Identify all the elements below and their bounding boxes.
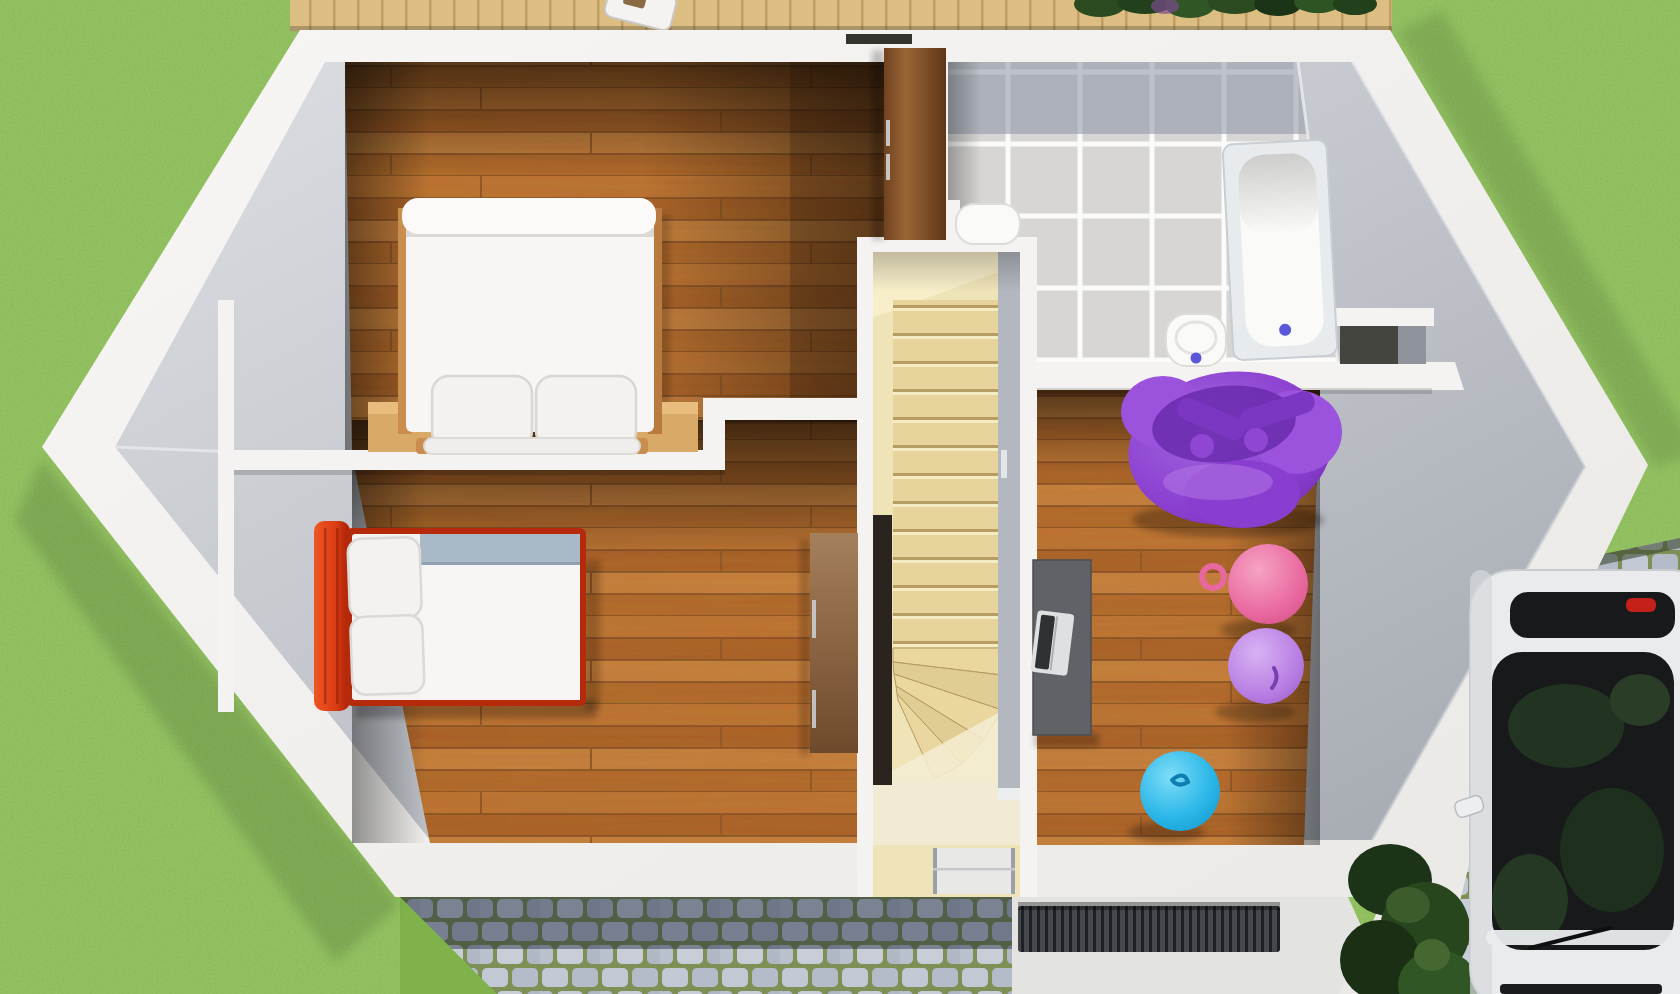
front-door-glass [933, 848, 1015, 894]
blue-ball [1140, 751, 1220, 831]
headboard-grain [324, 528, 327, 704]
cobble-path-shadow [400, 897, 1012, 949]
wardrobe1-shadow [872, 50, 884, 240]
bed2-pillows [347, 537, 424, 695]
niche-inner-face [1398, 326, 1426, 364]
wardrobe-single-room [810, 533, 858, 753]
toilet [1166, 314, 1226, 366]
glass-rail-panel [998, 252, 1022, 792]
floorplan-render [0, 0, 1680, 994]
bed2-side-shadow [584, 560, 600, 710]
hall-left-wall [857, 237, 873, 897]
car [1453, 570, 1680, 994]
beanbag-knob [1244, 428, 1268, 452]
bed2-band-edge [420, 562, 580, 565]
beanbag-knob [1190, 434, 1214, 458]
bed2-pillow-top [347, 537, 422, 619]
headboard-grain [336, 528, 339, 704]
top-wall-slot [846, 34, 912, 44]
car-grille [1500, 984, 1662, 994]
stair-hall [872, 250, 1024, 897]
floorplan-svg [0, 0, 1680, 994]
bed2-duvet-band [420, 534, 580, 564]
wardrobe2-shadow [800, 540, 810, 755]
wardrobe2-handle [812, 690, 816, 728]
niche-top-wall [1334, 308, 1434, 326]
bath-top-shadow [947, 62, 1342, 134]
wardrobe1-handle [886, 120, 890, 146]
toilet-flush-button [1191, 353, 1202, 364]
front-door [933, 848, 1015, 894]
wardrobe-double-room [884, 48, 946, 240]
laptop [1030, 610, 1074, 676]
door-frame-right [1011, 848, 1015, 894]
stair-treads [893, 300, 1010, 648]
bathtub-inner-shadow [1237, 152, 1319, 236]
car-cowl-band [1486, 930, 1680, 945]
wardrobe2-handle [812, 600, 816, 638]
wardrobe1-handle [886, 154, 890, 180]
bed1-headboard-rail [424, 438, 640, 454]
bed1-rolled-edge [402, 198, 656, 234]
rail-handle [1001, 450, 1007, 478]
doormat [1018, 906, 1280, 952]
car-taillight [1626, 598, 1656, 612]
bed2-headboard [314, 521, 350, 711]
violet-ball [1228, 628, 1304, 704]
violet-ball-shadow [1215, 702, 1295, 722]
beanbag-highlight [1163, 464, 1273, 500]
bed2-pillow-bottom [350, 615, 425, 695]
partition-wall-b [703, 398, 863, 420]
bathtub [1222, 139, 1337, 360]
left-wall-edge [218, 300, 234, 712]
door-frame-left [933, 848, 937, 894]
hall-top-shadow [872, 252, 1022, 292]
wash-basin [956, 204, 1020, 244]
pink-ball [1228, 544, 1308, 624]
door-glass-line [933, 868, 1015, 871]
partition-wall-join [703, 398, 725, 470]
car-side-shade [1470, 570, 1492, 994]
stair-void [872, 515, 892, 785]
doormat-shadow [1018, 902, 1280, 910]
